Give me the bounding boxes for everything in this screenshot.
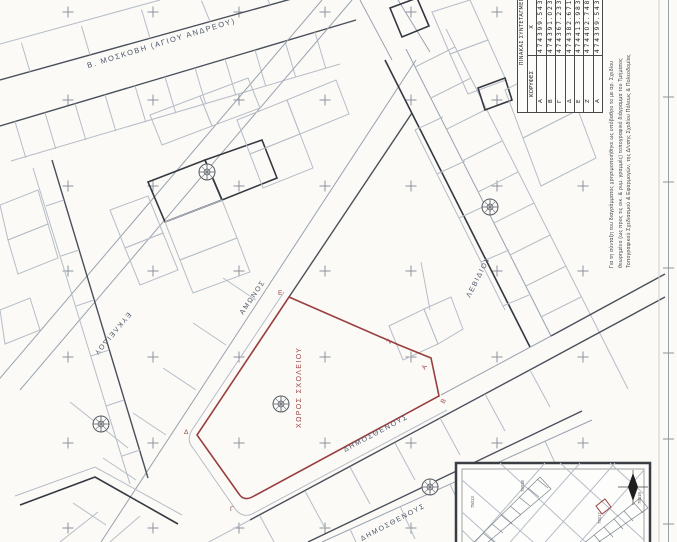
col-header-x: Χ [528,0,537,56]
vertex-cell: Α [593,56,602,113]
side-note-line: Τοπογραφικού Σχεδιασμού & Εφαρμογών, της… [625,10,634,268]
vertex-label-z: Ζ [386,338,394,345]
scanned-topographic-map: 75013 75018 75017 75019 Β. ΜΟΣΚΟΒΗ (ΑΓΙΟ… [0,0,677,542]
street-label-dimosthenous-2: ΔΗΜΟΣΘΕΝΟΥΣ [360,503,427,542]
monument-symbol-icon [482,199,498,215]
vertex-cell: Β [546,56,555,113]
x-cell: 474402.748 [584,0,593,56]
x-cell: 474391.023 [546,0,555,56]
x-cell: 474367.233 [556,0,565,56]
vertex-label-g: Γ [230,506,234,513]
site-label: ΧΩΡΟΣ ΣΧΟΛΕΙΟΥ [296,347,303,428]
table-row: Α474399.543 [537,0,546,113]
table-row: Ζ474402.748 [584,0,593,113]
vertex-cell: Δ [565,56,574,113]
vertex-cell: Ζ [584,56,593,113]
monument-symbol-icon [422,479,438,495]
survey-symbols [93,164,498,495]
blocks-bottom-left [15,467,182,542]
vertex-cell: Γ [556,56,565,113]
inset-block-number: 75013 [470,496,475,508]
street-amonos-lines [73,60,447,542]
x-cell: 474399.543 [593,0,602,56]
side-note-line: θεωρημένο (ως προς τις οικ. & ρυμ. γραμμ… [617,10,626,268]
x-cell: 474382.671 [565,0,574,56]
inset-block-number: 75017 [597,512,602,524]
street-moskovi-lines [0,0,356,161]
site-symbol-icon [273,396,289,412]
side-note-line: Για τη σύνταξη του διαγράμματος χρησιμοπ… [608,10,617,268]
vertex-cell: Α [537,56,546,113]
street-label-eukleidou: ΕΥΚΛΕΙΔΟΥ [92,311,132,357]
monument-symbol-icon [199,164,215,180]
street-label-amonos: ΑΜΩΝΟΣ [239,279,267,316]
inset-block-number: 75019 [637,492,642,504]
school-site-polygon [197,297,439,499]
vertex-label-d: Δ [184,429,189,436]
inset-block-number: 75018 [520,480,525,492]
coordinates-table: ΠΙΝΑΚΑΣ ΣΥΝΤΕΤΑΓΜΕΝΩΝ ΚΟΡΥΦΕΣ Χ Α474399.… [517,0,603,113]
scan-page-edge [659,0,674,542]
x-cell: 474399.543 [537,0,546,56]
x-cell: 474413.983 [575,0,584,56]
side-note: Για τη σύνταξη του διαγράμματος χρησιμοπ… [608,10,634,268]
coordinates-table-title: ΠΙΝΑΚΑΣ ΣΥΝΤΕΤΑΓΜΕΝΩΝ [518,0,528,113]
inset-key-map: 75013 75018 75017 75019 [456,463,650,542]
table-row: Δ474382.671 [565,0,574,113]
table-row: Γ474367.233 [556,0,565,113]
vertex-cell: Ε [575,56,584,113]
monument-symbol-icon [93,416,109,432]
col-header-vertices: ΚΟΡΥΦΕΣ [528,56,537,113]
vertex-label-e: Ε [278,290,283,297]
table-row: Β474391.023 [546,0,555,113]
table-row: Ε474413.983 [575,0,584,113]
street-eukleidou-lines [0,0,352,390]
vertex-label-a: Α [421,363,430,371]
table-row: Α474399.543 [593,0,602,113]
vertex-label-b: Β [440,398,448,405]
